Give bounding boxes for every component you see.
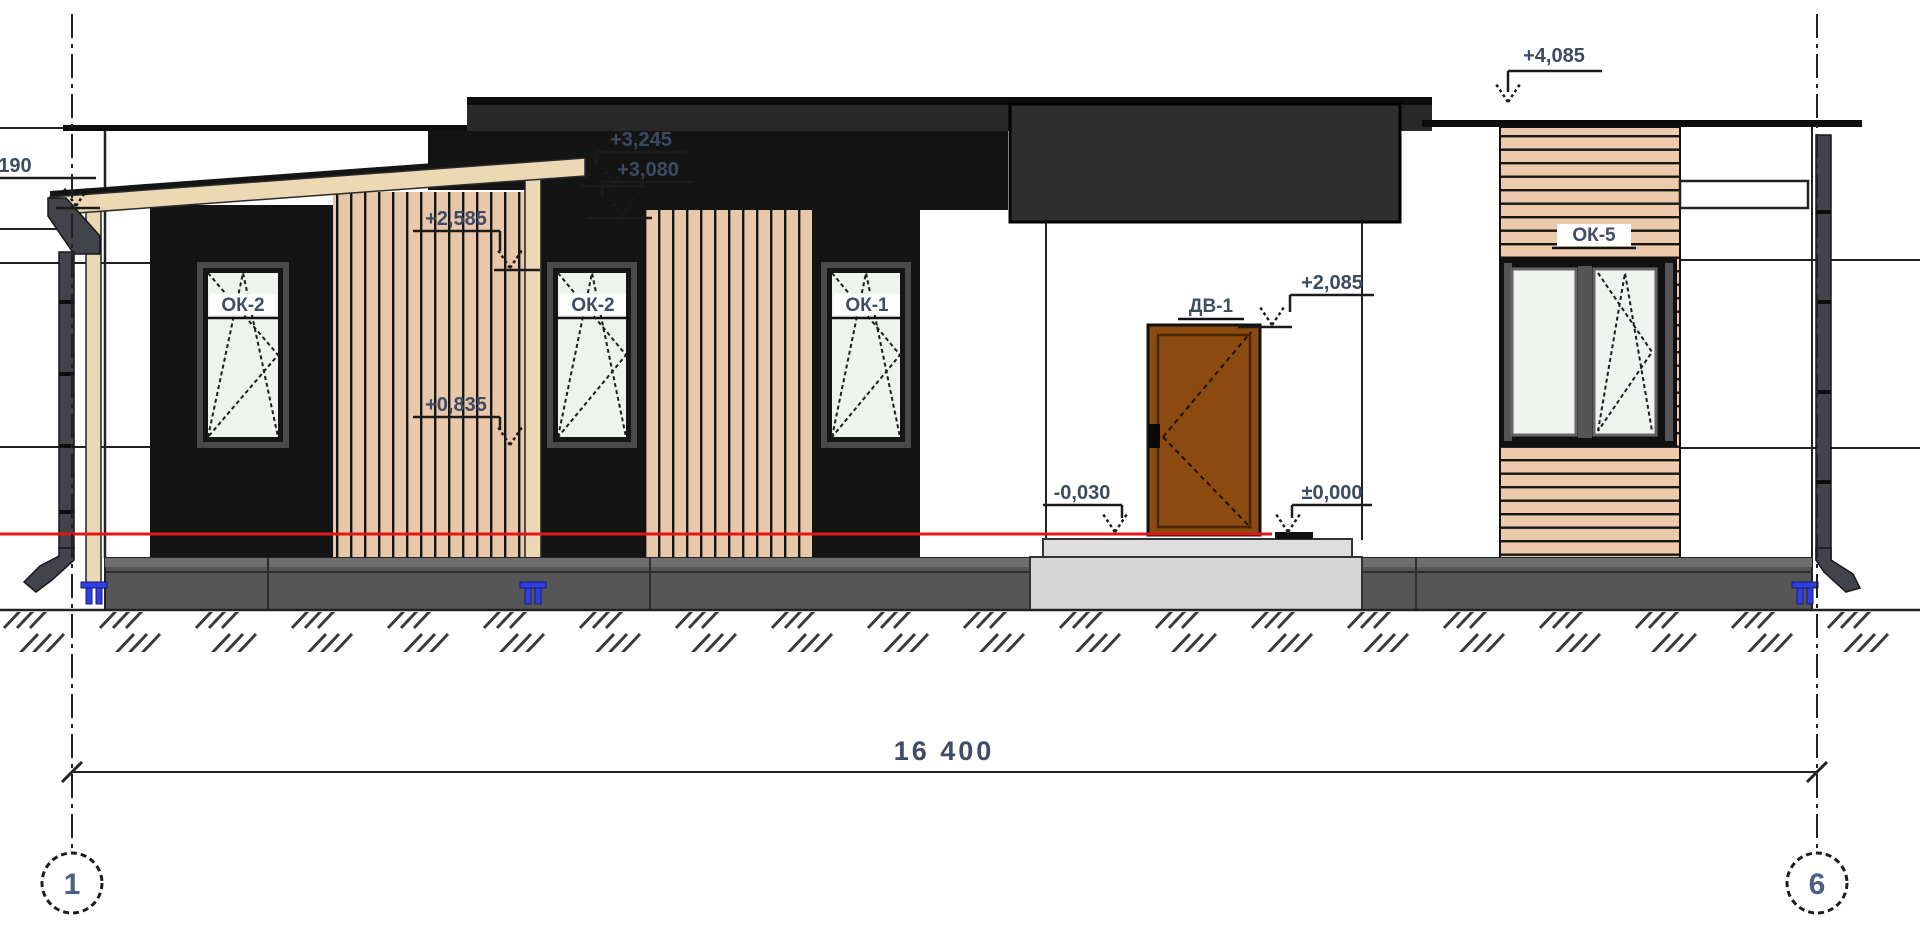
porch-step-lower: [1030, 557, 1362, 610]
window-ok1: [821, 262, 911, 448]
window-ok5: [1500, 257, 1677, 447]
facade-elevation-drawing: +4,085 190 +3,245 +3,080 +2,585 +0,835 +…: [0, 0, 1920, 935]
level-text-roof: +4,085: [1523, 45, 1585, 67]
vertical-slat-panel-1: [333, 192, 525, 558]
label-ok2-2: ОК-2: [557, 294, 629, 318]
door-handle: [1149, 424, 1160, 448]
fascia-vent-box: [1680, 181, 1808, 208]
roofline-left: [63, 125, 467, 131]
axis-number-6: 6: [1809, 868, 1826, 901]
label-text-ok1: ОК-1: [845, 295, 889, 316]
dimension-text: 16 400: [894, 736, 995, 766]
level-porch: [1043, 505, 1127, 532]
level-text-canopy: +2,585: [425, 208, 487, 230]
threshold-tick: [1275, 532, 1313, 539]
roofline-right: [1422, 120, 1862, 127]
label-text-dv1: ДВ-1: [1189, 296, 1234, 317]
label-ok2-1: ОК-2: [207, 294, 279, 318]
ground-hatch: [0, 612, 1920, 652]
level-text-fascia-bottom: +3,080: [617, 159, 679, 181]
downspout-right: [1816, 135, 1831, 560]
level-floor: [1276, 505, 1372, 532]
label-ok5: ОК-5: [1552, 224, 1636, 248]
axis-number-1: 1: [64, 868, 81, 901]
level-text-porch: -0,030: [1054, 482, 1111, 504]
window-ok2-1: [197, 262, 289, 448]
window-ok2-2: [547, 262, 637, 448]
level-text-left-cut: 190: [0, 155, 32, 177]
vertical-slat-panel-2: [645, 210, 813, 558]
label-text-ok2-1: ОК-2: [221, 295, 264, 316]
downspout-right-outlet: [1816, 548, 1860, 592]
entrance-canopy: [1010, 104, 1400, 222]
level-roof: [1496, 71, 1602, 102]
anchor-post-1: [81, 582, 107, 604]
label-dv1: ДВ-1: [1178, 295, 1244, 319]
label-text-ok2-2: ОК-2: [571, 295, 614, 316]
porch-step-upper: [1043, 539, 1352, 557]
level-text-fascia-top: +3,245: [610, 129, 672, 151]
dark-band-c: [920, 131, 1008, 210]
level-text-sill: +0,835: [425, 394, 487, 416]
level-text-door-top: +2,085: [1301, 272, 1363, 294]
wood-post-2: [525, 164, 541, 583]
label-ok1: ОК-1: [831, 294, 903, 318]
entrance-door: [1148, 325, 1260, 535]
elevation-canvas: +4,085 190 +3,245 +3,080 +2,585 +0,835 +…: [0, 0, 1920, 935]
downspout-left-outlet: [24, 548, 74, 592]
plinth-top-course: [105, 558, 1812, 567]
level-text-floor: ±0,000: [1301, 482, 1362, 504]
label-text-ok5: ОК-5: [1572, 225, 1616, 246]
level-door-top: [1238, 295, 1374, 327]
